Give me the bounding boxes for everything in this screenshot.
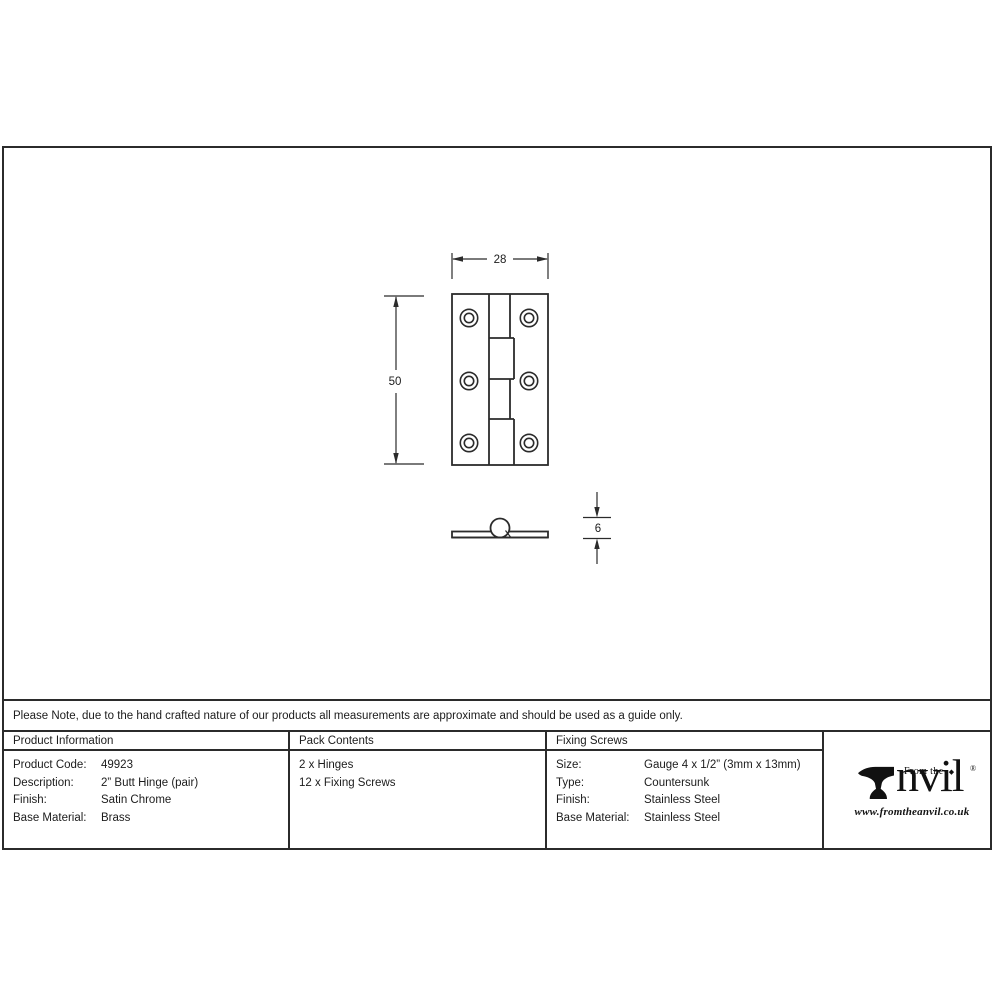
anvil-icon bbox=[854, 763, 898, 799]
spec-label: Size: bbox=[556, 757, 644, 775]
spec-value: Gauge 4 x 1/2” (3mm x 13mm) bbox=[644, 757, 822, 775]
spec-label: Finish: bbox=[556, 792, 644, 810]
spec-table: Product Information Product Code: 49923 … bbox=[2, 730, 992, 850]
spec-value: 49923 bbox=[101, 757, 288, 775]
note-text: Please Note, due to the hand crafted nat… bbox=[13, 710, 683, 722]
spec-label: Type: bbox=[556, 775, 644, 793]
fixing-screws-header: Fixing Screws bbox=[547, 732, 822, 751]
spec-label: Description: bbox=[13, 775, 101, 793]
logo-website-url: www.fromtheanvil.co.uk bbox=[836, 806, 988, 818]
pack-contents-cell: Pack Contents 2 x Hinges 12 x Fixing Scr… bbox=[290, 732, 547, 848]
pack-item: 2 x Hinges bbox=[299, 757, 545, 775]
registered-trademark-symbol: ® bbox=[970, 764, 976, 773]
brand-logo-cell: From the nvil ◆ ® www.fromtheanvil.co.uk bbox=[824, 732, 990, 848]
spec-label: Product Code: bbox=[13, 757, 101, 775]
spec-value: Countersunk bbox=[644, 775, 822, 793]
spec-value: 2” Butt Hinge (pair) bbox=[101, 775, 288, 793]
spec-value: Stainless Steel bbox=[644, 792, 822, 810]
spec-value: Stainless Steel bbox=[644, 810, 822, 828]
product-information-cell: Product Information Product Code: 49923 … bbox=[4, 732, 290, 848]
spec-sheet-page: { "drawing": { "front_view": { "width_la… bbox=[0, 0, 1000, 1000]
spec-label: Finish: bbox=[13, 792, 101, 810]
spec-label: Base Material: bbox=[556, 810, 644, 828]
spec-value: Satin Chrome bbox=[101, 792, 288, 810]
product-information-body: Product Code: 49923 Description: 2” Butt… bbox=[4, 751, 288, 827]
fixing-screws-body: Size: Gauge 4 x 1/2” (3mm x 13mm) Type: … bbox=[547, 751, 822, 827]
pack-item: 12 x Fixing Screws bbox=[299, 775, 545, 793]
note-row: Please Note, due to the hand crafted nat… bbox=[2, 699, 992, 732]
logo-diamond-dot: ◆ bbox=[949, 768, 955, 777]
pack-contents-header: Pack Contents bbox=[290, 732, 545, 751]
spec-value: Brass bbox=[101, 810, 288, 828]
product-information-header: Product Information bbox=[4, 732, 288, 751]
spec-label: Base Material: bbox=[13, 810, 101, 828]
fixing-screws-cell: Fixing Screws Size: Gauge 4 x 1/2” (3mm … bbox=[547, 732, 824, 848]
pack-contents-body: 2 x Hinges 12 x Fixing Screws bbox=[290, 751, 545, 792]
